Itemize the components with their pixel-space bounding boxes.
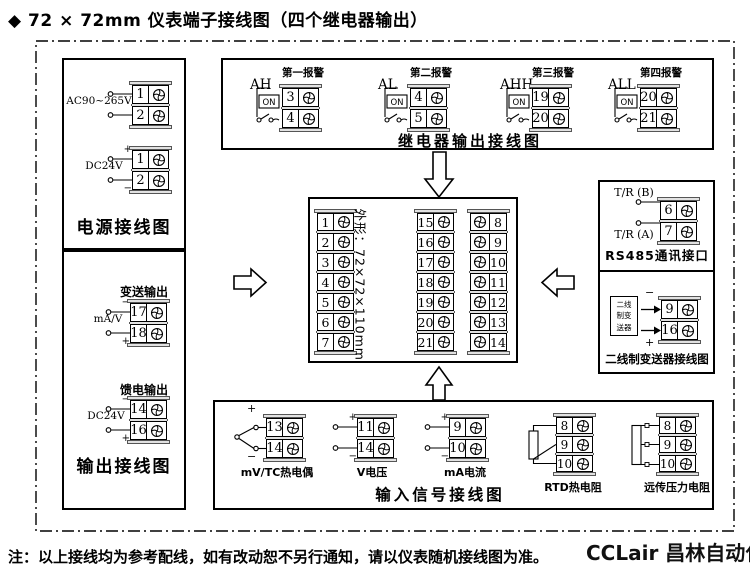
terminal-number: 14 [266, 439, 283, 458]
screw-head-icon [377, 421, 391, 435]
wiring-diagram-page: ◆ 72 × 72mm 仪表端子接线图（四个继电器输出） AC90~265V 1… [0, 0, 750, 579]
terminal-block-cap [129, 190, 172, 194]
terminal-row: 9 [556, 436, 593, 453]
terminal-row: 8 [556, 417, 593, 434]
terminal-number: 2 [132, 171, 149, 190]
terminal-block-cap [656, 472, 699, 476]
terminal-row: 5 [317, 293, 354, 311]
screw-head-icon [679, 438, 693, 452]
terminal-number: 19 [417, 293, 434, 311]
terminal-row: 19 [417, 293, 454, 311]
screw-terminal [466, 439, 486, 458]
terminal-row: 20 [532, 109, 569, 128]
screw-head-icon [552, 112, 566, 126]
terminal-number: 4 [317, 273, 334, 291]
terminal-row: 12 [470, 293, 507, 311]
terminal-row: 16 [661, 321, 698, 340]
terminal-number: 14 [357, 439, 374, 458]
terminal-row: 20 [417, 313, 454, 331]
terminal-number: 4 [410, 88, 427, 107]
terminal-block-cap [127, 440, 170, 444]
screw-head-icon [337, 315, 351, 329]
terminal-row: 6 [317, 313, 354, 331]
terminal-row: 4 [282, 109, 319, 128]
terminal-number: 18 [130, 324, 147, 343]
terminal-number: 18 [417, 273, 434, 291]
terminal-number: 13 [266, 418, 283, 437]
screw-terminal [549, 88, 569, 107]
input-box-label: 输入信号接线图 [375, 483, 505, 505]
terminal-row: 17 [417, 253, 454, 271]
screw-terminal [149, 85, 169, 104]
tr-a-label: T/R (A) [614, 228, 653, 241]
terminal-number: 7 [660, 222, 677, 241]
terminal-block-cap [127, 343, 170, 347]
screw-terminal [676, 417, 696, 434]
wire-lead: + [104, 422, 130, 438]
terminal-row: 10 [659, 455, 696, 472]
relay-contact-symbol: ON [610, 87, 640, 129]
terminal-block-alarm1: 34 [282, 84, 319, 132]
screw-head-icon [437, 295, 451, 309]
terminal-row: 14 [266, 439, 303, 458]
alarm2-title: 第二报警 [410, 65, 452, 80]
thermocouple-label: mV/TC热电偶 [241, 464, 314, 480]
wire-lead: + [331, 419, 357, 435]
relay-on-label: ON [512, 98, 525, 108]
terminal-block-rs485: 67 [660, 197, 697, 245]
screw-terminal [573, 436, 593, 453]
screw-terminal [573, 417, 593, 434]
wire-lead: − [423, 440, 449, 456]
screw-terminal [434, 273, 454, 291]
terminal-number: 10 [449, 439, 466, 458]
power-box-label: 电源接线图 [77, 213, 172, 238]
terminal-number: 19 [532, 88, 549, 107]
flow-arrow-right-icon [234, 269, 266, 296]
terminal-number: 1 [132, 150, 149, 169]
terminal-row: 1 [132, 150, 169, 169]
screw-terminal [147, 400, 167, 419]
terminal-block-current: 910 [449, 414, 486, 462]
wire-lead [106, 107, 132, 123]
terminal-block-feed-output: 1416 [130, 396, 167, 444]
flow-arrow-up-icon [426, 367, 452, 400]
terminal-row: 9 [470, 233, 507, 251]
screw-terminal [470, 313, 490, 331]
terminal-block-rtd: 8910 [556, 413, 593, 476]
terminal-block-dc-power: 12 [132, 146, 169, 194]
terminal-block-ac-power: 12 [132, 81, 169, 129]
terminal-row: 10 [556, 455, 593, 472]
screw-terminal [149, 150, 169, 169]
relay-contact-symbol: ON [502, 87, 532, 129]
terminal-number: 9 [659, 436, 676, 453]
screw-head-icon [337, 215, 351, 229]
screw-terminal [147, 324, 167, 343]
screw-terminal [374, 439, 394, 458]
screw-head-icon [473, 335, 487, 349]
terminal-block-center-left: 1234567 [317, 209, 354, 355]
terminal-row: 18 [130, 324, 167, 343]
screw-head-icon [681, 303, 695, 317]
terminal-row: 6 [660, 201, 697, 220]
screw-terminal [678, 300, 698, 319]
terminal-number: 8 [659, 417, 676, 434]
two-wire-transmitter-device: 二线 制变 送器 [610, 296, 638, 336]
screw-head-icon [680, 225, 694, 239]
terminal-number: 10 [490, 253, 507, 271]
screw-terminal [678, 321, 698, 340]
screw-head-icon [152, 88, 166, 102]
screw-head-icon [552, 91, 566, 105]
relay-switch-icon: ON [502, 87, 532, 125]
terminal-row: 3 [317, 253, 354, 271]
voltage-label: V电压 [357, 464, 388, 480]
terminal-number: 9 [661, 300, 678, 319]
terminal-row: 16 [130, 421, 167, 440]
screw-head-icon [337, 235, 351, 249]
screw-terminal [470, 333, 490, 351]
screw-head-icon [469, 421, 483, 435]
device-line: 送器 [617, 322, 632, 333]
terminal-number: 17 [130, 303, 147, 322]
screw-head-icon [286, 442, 300, 456]
relay-switch-icon: ON [252, 87, 282, 125]
pressure-resistor-icon [629, 413, 659, 477]
terminal-row: 10 [449, 439, 486, 458]
terminal-block-center-right: 891011121314 [470, 209, 507, 355]
screw-terminal [147, 303, 167, 322]
terminal-number: 9 [490, 233, 507, 251]
terminal-block-cap [129, 125, 172, 129]
screw-head-icon [660, 91, 674, 105]
wire-lead-icon [106, 107, 132, 123]
terminal-row: 15 [417, 213, 454, 231]
screw-terminal [299, 109, 319, 128]
terminal-block-transmit-output: 1718 [130, 299, 167, 347]
screw-terminal [434, 233, 454, 251]
terminal-number: 11 [490, 273, 507, 291]
screw-terminal [434, 313, 454, 331]
screw-head-icon [473, 275, 487, 289]
screw-terminal [427, 88, 447, 107]
ma-v-label: mA/V [94, 313, 123, 325]
terminal-block-center-middle: 15161718192021 [417, 209, 454, 355]
screw-terminal [677, 201, 697, 220]
terminal-number: 16 [417, 233, 434, 251]
terminal-block-cap [658, 340, 701, 344]
screw-head-icon [150, 306, 164, 320]
screw-head-icon [437, 255, 451, 269]
terminal-number: 12 [490, 293, 507, 311]
transmitter-box-label: 二线制变送器接线图 [605, 351, 709, 367]
screw-head-icon [680, 204, 694, 218]
screw-terminal [657, 88, 677, 107]
screw-head-icon [150, 403, 164, 417]
relay-box-label: 继电器输出接线图 [398, 130, 542, 151]
terminal-row: 2 [132, 171, 169, 190]
screw-terminal [149, 106, 169, 125]
terminal-number: 4 [282, 109, 299, 128]
screw-terminal [470, 213, 490, 231]
rtd-resistor-icon [526, 413, 556, 477]
terminal-block-cap [553, 472, 596, 476]
screw-head-icon [337, 335, 351, 349]
terminal-number: 17 [417, 253, 434, 271]
terminal-block-transmitter: 916 [661, 296, 698, 344]
terminal-row: 16 [417, 233, 454, 251]
terminal-row: 13 [470, 313, 507, 331]
relay-switch-icon: ON [610, 87, 640, 125]
terminal-number: 7 [317, 333, 334, 351]
screw-head-icon [679, 457, 693, 471]
screw-terminal [470, 233, 490, 251]
terminal-block-cap [446, 458, 489, 462]
terminal-row: 11 [357, 418, 394, 437]
terminal-row: 1 [132, 85, 169, 104]
terminal-number: 10 [556, 455, 573, 472]
terminal-row: 3 [282, 88, 319, 107]
ac-power-label: AC90~265V [66, 95, 131, 107]
terminal-row: 8 [659, 417, 696, 434]
screw-head-icon [473, 295, 487, 309]
terminal-number: 5 [317, 293, 334, 311]
terminal-number: 9 [449, 418, 466, 437]
screw-head-icon [337, 255, 351, 269]
dc-power-label: DC24V [85, 160, 122, 172]
terminal-row: 4 [317, 273, 354, 291]
screw-terminal [573, 455, 593, 472]
feed-dc24v-label: DC24V [87, 410, 124, 422]
polarity-label: + [645, 337, 654, 348]
wire-lead: − [106, 172, 132, 188]
brand-logo: CCLair 昌林自动化 [584, 537, 750, 566]
terminal-row: 14 [357, 439, 394, 458]
screw-terminal [434, 293, 454, 311]
screw-terminal [549, 109, 569, 128]
terminal-row: 17 [130, 303, 167, 322]
flow-arrow-left-icon [542, 269, 574, 296]
terminal-number: 16 [130, 421, 147, 440]
terminal-number: 2 [317, 233, 334, 251]
terminal-block-pressure: 8910 [659, 413, 696, 476]
terminal-number: 11 [357, 418, 374, 437]
alarm1-title: 第一报警 [282, 65, 324, 80]
terminal-row: 14 [130, 400, 167, 419]
screw-head-icon [377, 442, 391, 456]
screw-terminal [283, 418, 303, 437]
screw-head-icon [576, 438, 590, 452]
terminal-number: 6 [317, 313, 334, 331]
screw-head-icon [152, 174, 166, 188]
screw-terminal [676, 455, 696, 472]
screw-terminal [374, 418, 394, 437]
terminal-number: 1 [132, 85, 149, 104]
terminal-block-thermocouple: 1314 [266, 414, 303, 462]
terminal-number: 6 [660, 201, 677, 220]
current-label: mA电流 [444, 464, 486, 480]
screw-head-icon [430, 91, 444, 105]
terminal-row: 10 [470, 253, 507, 271]
alarm4-title: 第四报警 [640, 65, 682, 80]
terminal-number: 20 [532, 109, 549, 128]
screw-head-icon [473, 235, 487, 249]
screw-terminal [676, 436, 696, 453]
terminal-row: 5 [410, 109, 447, 128]
polarity-label: − [247, 451, 256, 462]
screw-terminal [427, 109, 447, 128]
device-line: 二线 [617, 299, 632, 310]
screw-head-icon [437, 275, 451, 289]
relay-switch-icon: ON [380, 87, 410, 125]
terminal-block-alarm4: 2021 [640, 84, 677, 132]
terminal-number: 21 [640, 109, 657, 128]
terminal-number: 15 [417, 213, 434, 231]
terminal-number: 9 [556, 436, 573, 453]
relay-on-label: ON [620, 98, 633, 108]
relay-on-label: ON [390, 98, 403, 108]
screw-head-icon [302, 91, 316, 105]
screw-terminal [470, 293, 490, 311]
terminal-row: 9 [661, 300, 698, 319]
terminal-row: 4 [410, 88, 447, 107]
terminal-block-cap [414, 351, 457, 355]
screw-terminal [147, 421, 167, 440]
terminal-number: 13 [490, 313, 507, 331]
screw-head-icon [430, 112, 444, 126]
terminal-row: 7 [660, 222, 697, 241]
terminal-number: 10 [659, 455, 676, 472]
terminal-number: 1 [317, 213, 334, 231]
wire-lead: + [423, 419, 449, 435]
screw-head-icon [473, 315, 487, 329]
screw-terminal [466, 418, 486, 437]
terminal-block-cap [279, 128, 322, 132]
relay-on-label: ON [262, 98, 275, 108]
terminal-row: 19 [532, 88, 569, 107]
device-line: 制变 [617, 310, 632, 321]
terminal-row: 11 [470, 273, 507, 291]
terminal-row: 2 [317, 233, 354, 251]
terminal-number: 8 [556, 417, 573, 434]
terminal-block-alarm2: 45 [410, 84, 447, 132]
relay-contact-symbol: ON [252, 87, 282, 129]
screw-head-icon [660, 112, 674, 126]
screw-terminal [470, 273, 490, 291]
terminal-row: 13 [266, 418, 303, 437]
transmitter-arrows-icon [640, 296, 662, 340]
terminal-block-cap [467, 351, 510, 355]
terminal-number: 16 [661, 321, 678, 340]
footer-note: 注：以上接线均为参考配线，如有改动恕不另行通知，请以仪表随机接线图为准。 [8, 546, 548, 567]
screw-head-icon [302, 112, 316, 126]
terminal-row: 21 [640, 109, 677, 128]
terminal-row: 7 [317, 333, 354, 351]
screw-head-icon [437, 315, 451, 329]
screw-head-icon [437, 235, 451, 249]
terminal-number: 2 [132, 106, 149, 125]
terminal-number: 3 [317, 253, 334, 271]
screw-terminal [434, 253, 454, 271]
terminal-row: 9 [659, 436, 696, 453]
screw-terminal [149, 171, 169, 190]
rtd-label: RTD热电阻 [544, 479, 602, 495]
screw-head-icon [473, 255, 487, 269]
alarm3-title: 第三报警 [532, 65, 574, 80]
rs485-box-label: RS485通讯接口 [605, 245, 709, 264]
terminal-number: 3 [282, 88, 299, 107]
screw-head-icon [681, 324, 695, 338]
screw-head-icon [469, 442, 483, 456]
screw-head-icon [152, 153, 166, 167]
terminal-row: 14 [470, 333, 507, 351]
outline-dimension-label: 外形：72×72×110mm [352, 209, 371, 359]
terminal-number: 14 [130, 400, 147, 419]
terminal-number: 20 [640, 88, 657, 107]
screw-terminal [434, 213, 454, 231]
terminal-block-alarm3: 1920 [532, 84, 569, 132]
terminal-row: 1 [317, 213, 354, 231]
screw-terminal [470, 253, 490, 271]
screw-head-icon [150, 424, 164, 438]
screw-terminal [299, 88, 319, 107]
terminal-number: 8 [490, 213, 507, 231]
terminal-block-cap [637, 128, 680, 132]
polarity-label: − [645, 287, 654, 298]
terminal-number: 14 [490, 333, 507, 351]
screw-head-icon [473, 215, 487, 229]
terminal-row: 8 [470, 213, 507, 231]
flow-arrow-down-icon [425, 152, 453, 197]
terminal-row: 21 [417, 333, 454, 351]
screw-head-icon [152, 109, 166, 123]
terminal-block-cap [354, 458, 397, 462]
output-box-label: 输出接线图 [77, 452, 172, 477]
page-title: ◆ 72 × 72mm 仪表端子接线图（四个继电器输出） [8, 6, 428, 31]
screw-terminal [657, 109, 677, 128]
screw-head-icon [286, 421, 300, 435]
terminal-number: 20 [417, 313, 434, 331]
screw-head-icon [150, 327, 164, 341]
terminal-number: 5 [410, 109, 427, 128]
terminal-number: 21 [417, 333, 434, 351]
screw-terminal [283, 439, 303, 458]
terminal-row: 9 [449, 418, 486, 437]
terminal-row: 20 [640, 88, 677, 107]
polarity-label: + [247, 403, 256, 414]
screw-head-icon [576, 419, 590, 433]
relay-contact-symbol: ON [380, 87, 410, 129]
terminal-row: 18 [417, 273, 454, 291]
wire-lead: − [331, 440, 357, 456]
terminal-block-cap [263, 458, 306, 462]
pressure-label: 远传压力电阻 [644, 479, 710, 495]
screw-terminal [677, 222, 697, 241]
screw-terminal [434, 333, 454, 351]
screw-head-icon [337, 275, 351, 289]
terminal-row: 2 [132, 106, 169, 125]
screw-head-icon [576, 457, 590, 471]
wire-lead: + [104, 325, 130, 341]
terminal-block-voltage: 1114 [357, 414, 394, 462]
screw-head-icon [679, 419, 693, 433]
screw-head-icon [337, 295, 351, 309]
screw-head-icon [437, 335, 451, 349]
screw-head-icon [437, 215, 451, 229]
